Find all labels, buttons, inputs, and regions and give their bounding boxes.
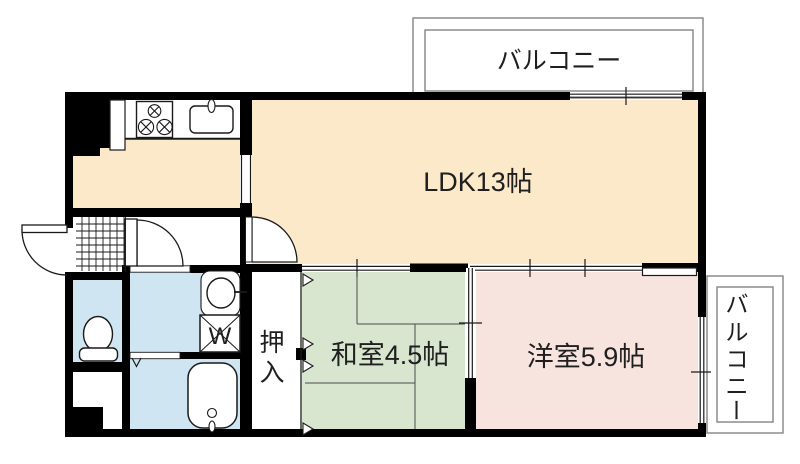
hallway-door-leaf bbox=[125, 219, 137, 266]
entrance-door-arc bbox=[22, 230, 67, 275]
wall-japanese-western bbox=[465, 378, 476, 429]
wall-top-left bbox=[65, 92, 570, 100]
toilet-tank-icon bbox=[80, 348, 118, 361]
ldk-door-leaf bbox=[246, 217, 253, 262]
washing-machine-label: W bbox=[209, 323, 232, 350]
japanese-room-label: 和室4.5帖 bbox=[331, 340, 450, 370]
wall-toilet-washroom bbox=[122, 265, 130, 437]
wall-washroom-bath bbox=[180, 352, 247, 359]
service-shaft bbox=[65, 407, 103, 437]
pillar-step bbox=[65, 92, 100, 156]
closet-label-char: 入 bbox=[259, 359, 284, 387]
ldk-label: LDK13帖 bbox=[423, 167, 533, 197]
sink-faucet-icon bbox=[208, 100, 215, 113]
wall-kitchen-ldk-upper bbox=[240, 100, 252, 155]
wall-ldk-japanese bbox=[410, 264, 468, 273]
wall-corner-right bbox=[697, 263, 706, 272]
floor-plan-svg: バルコニー LDK13帖 和室4.5帖 洋室5.9帖 押 入 バ ル コ ニ ー… bbox=[0, 0, 800, 464]
wall-right-upper bbox=[698, 92, 706, 317]
wall-closet-left bbox=[240, 264, 252, 437]
entrance-door-leaf bbox=[22, 225, 67, 233]
western-room-label: 洋室5.9帖 bbox=[527, 342, 646, 372]
western-room-door bbox=[643, 268, 697, 276]
hallway-door-arc bbox=[137, 220, 183, 266]
bathroom-door bbox=[130, 352, 180, 358]
balcony-right-char: ニ bbox=[726, 373, 749, 399]
balcony-top-label: バルコニー bbox=[497, 47, 622, 75]
balcony-right-char: ル bbox=[726, 319, 749, 345]
refrigerator-space bbox=[110, 100, 125, 150]
bathtub-spout-icon bbox=[209, 421, 215, 432]
toilet-icon bbox=[84, 317, 113, 352]
wall-right-lower bbox=[698, 423, 706, 437]
kitchen-opening bbox=[242, 155, 251, 203]
bathtub-icon bbox=[188, 363, 237, 428]
closet-label: 押 入 bbox=[259, 329, 284, 387]
wall-toilet-bottom bbox=[65, 362, 130, 372]
washroom-door bbox=[130, 266, 190, 272]
balcony-right-char: コ bbox=[726, 346, 749, 372]
entrance-tile-grid bbox=[76, 217, 126, 272]
wall-toilet-top bbox=[65, 272, 130, 280]
closet-label-char: 押 bbox=[259, 329, 284, 357]
balcony-right-char: ー bbox=[723, 399, 749, 422]
wall-closet-top bbox=[252, 264, 302, 272]
balcony-right-label: バ ル コ ニ ー bbox=[723, 291, 749, 422]
balcony-right-char: バ bbox=[726, 291, 749, 317]
washbasin-icon bbox=[207, 278, 235, 308]
bathtub-drain-icon bbox=[208, 409, 217, 418]
wall-bottom bbox=[65, 429, 706, 437]
wall-western-top-thin bbox=[642, 263, 697, 268]
floor-plan: バルコニー LDK13帖 和室4.5帖 洋室5.9帖 押 入 バ ル コ ニ ー… bbox=[0, 0, 800, 464]
wall-kitchen-hall bbox=[65, 208, 252, 217]
